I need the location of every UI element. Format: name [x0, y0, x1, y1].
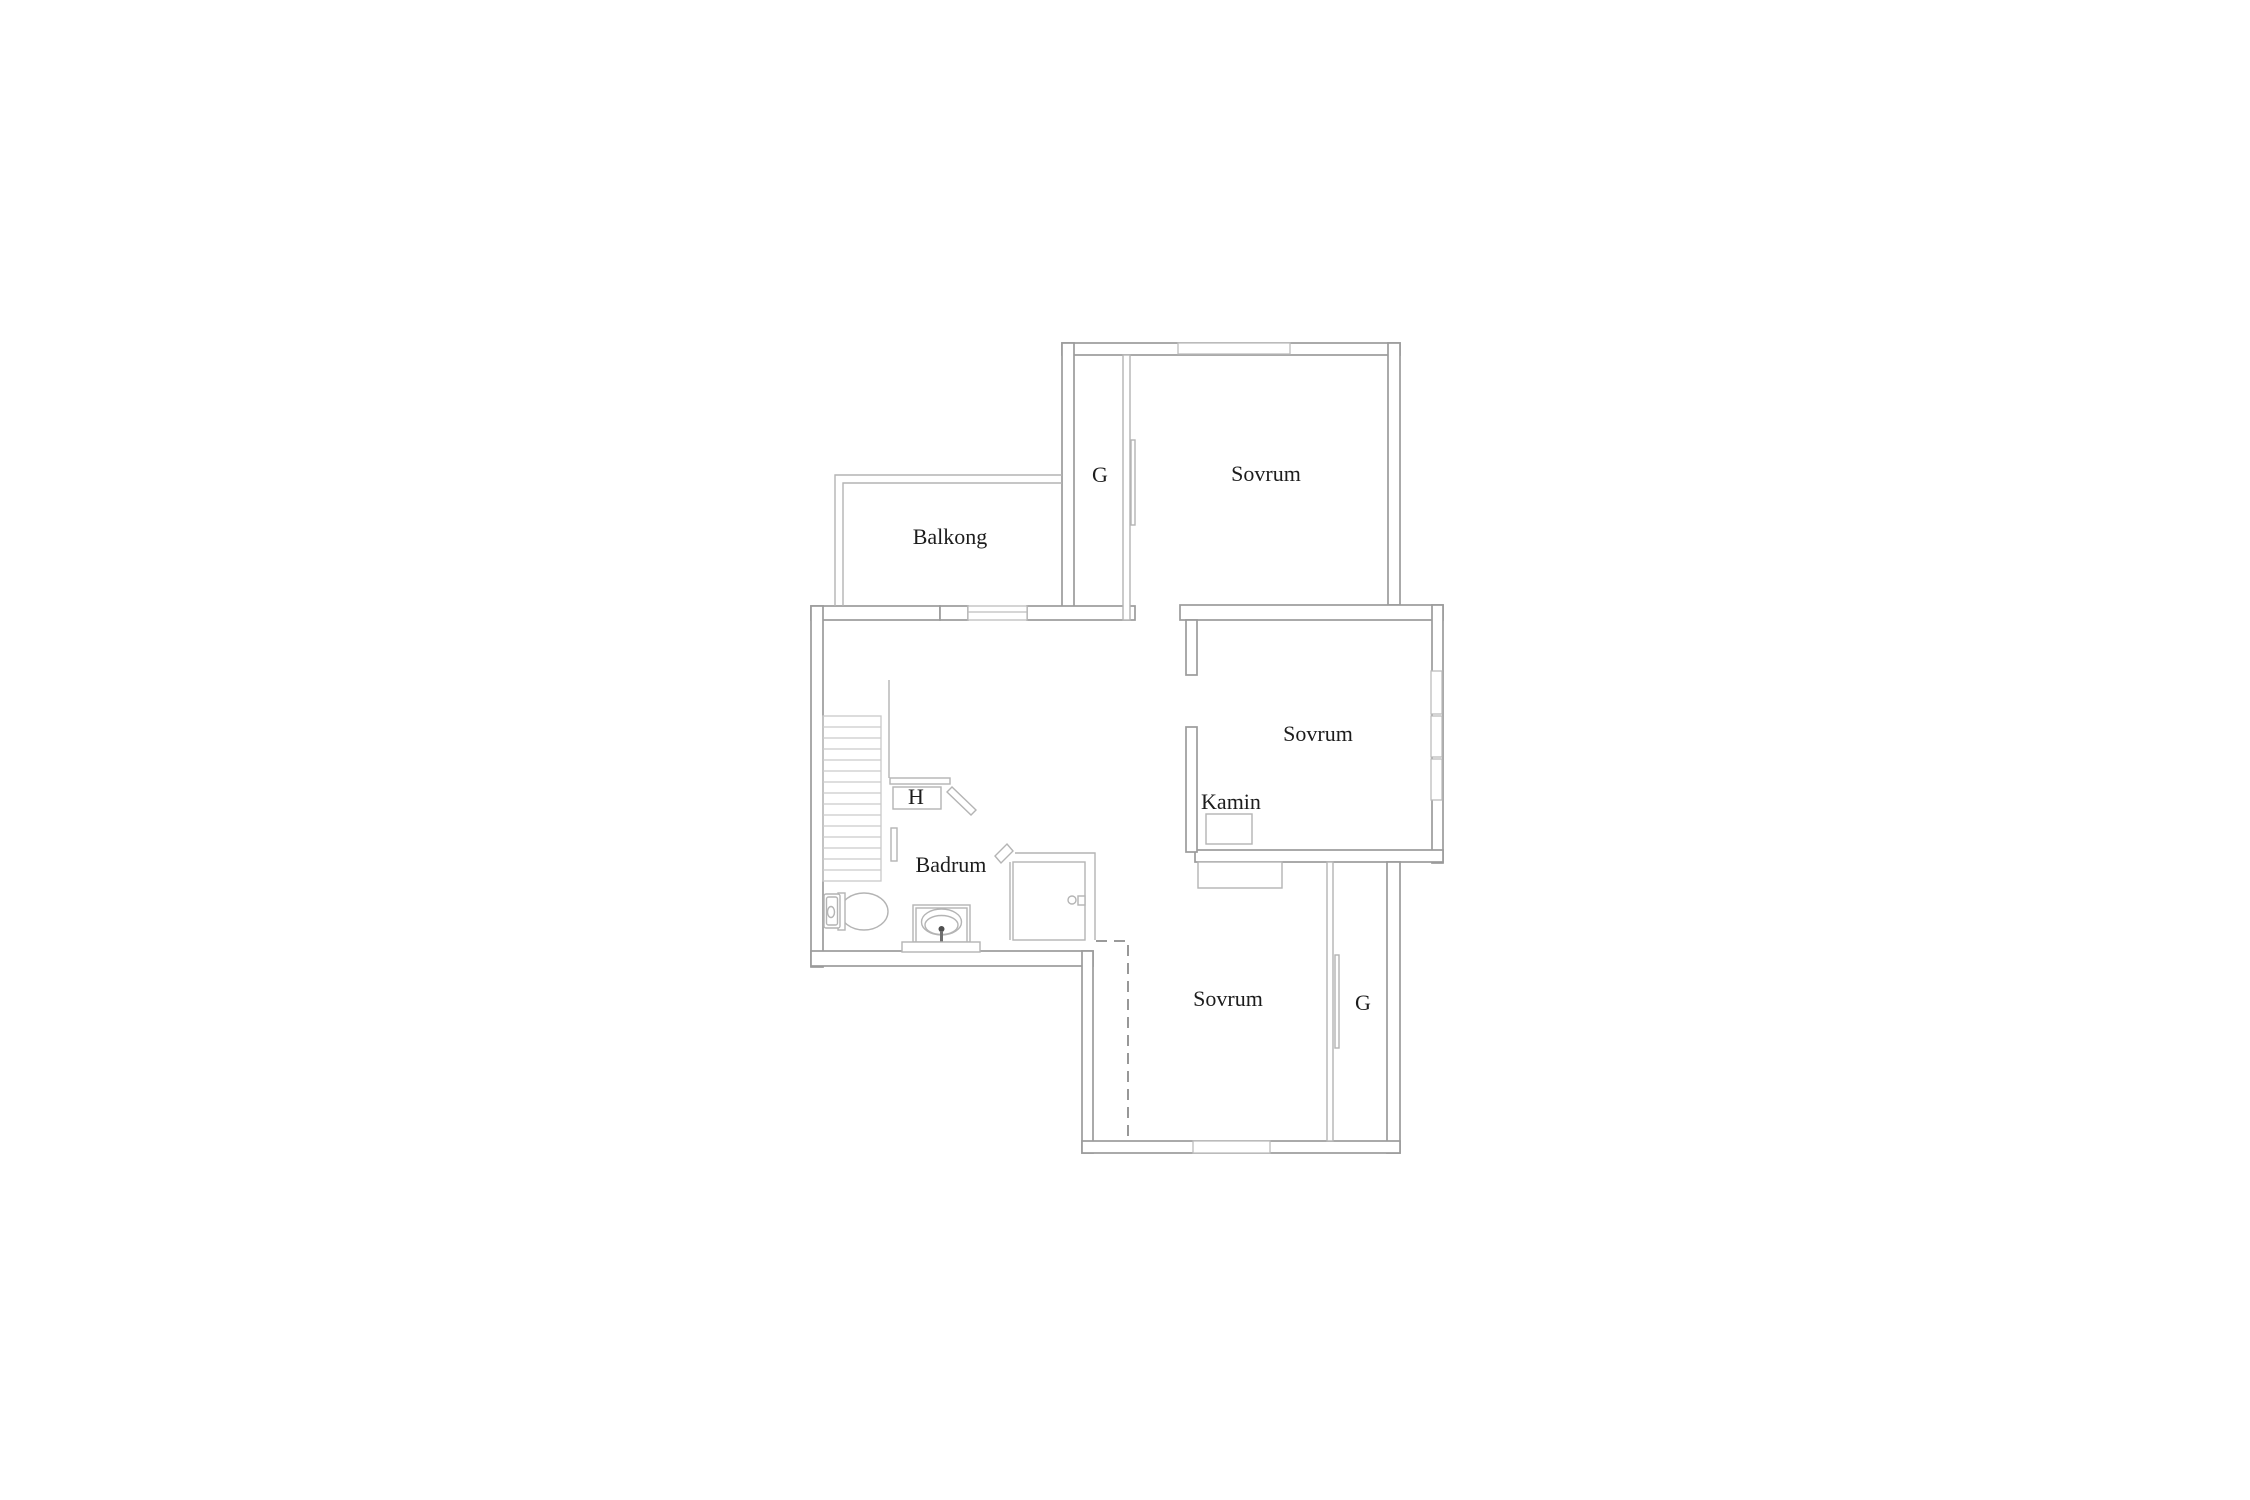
window-east-2	[1431, 716, 1442, 757]
window-balcony	[968, 606, 1027, 620]
floor-plan-page: Balkong G Sovrum Sovrum Kamin Badrum H S…	[0, 0, 2250, 1500]
closet-g-top-wall	[1123, 355, 1130, 620]
toilet-bowl	[840, 893, 888, 930]
bottom-block-west-wall	[1082, 951, 1093, 1153]
window-east-1	[1431, 671, 1442, 714]
balcony-door-jamb	[940, 606, 968, 620]
stair-treads	[823, 727, 881, 870]
sliding-door-closet-bottom	[1335, 955, 1339, 1048]
badrum-south-wall	[811, 951, 1093, 966]
wardrobe-niche	[1198, 862, 1282, 888]
room-label-closet-g-top: G	[1092, 462, 1108, 487]
shower-door-handle-plate	[1078, 896, 1085, 905]
sovrum-mid-north-wall	[1180, 605, 1443, 620]
room-label-closet-h: H	[908, 784, 924, 809]
shower-door-handle-knob	[1068, 896, 1076, 904]
window-top	[1178, 343, 1290, 354]
window-east-3	[1431, 759, 1442, 800]
window-south	[1193, 1141, 1270, 1153]
top-block-west-wall	[1062, 343, 1074, 607]
closet-h	[890, 778, 976, 815]
toilet-flush-button	[828, 907, 835, 918]
windows	[968, 343, 1442, 1153]
shower	[995, 844, 1095, 940]
room-label-sovrum-mid: Sovrum	[1283, 721, 1353, 746]
room-label-closet-g-bottom: G	[1355, 990, 1371, 1015]
sovrum-mid-south-wall	[1195, 850, 1443, 862]
room-label-sovrum-top: Sovrum	[1231, 461, 1301, 486]
shower-corner-diagonal	[995, 844, 1013, 863]
hall-north-wall-mid	[1027, 606, 1135, 620]
walls	[811, 343, 1443, 1153]
top-block-east-wall	[1388, 343, 1400, 605]
room-label-badrum: Badrum	[916, 852, 987, 877]
hall-north-wall-west	[811, 606, 940, 620]
room-label-sovrum-bottom: Sovrum	[1193, 986, 1263, 1011]
sovrum-mid-west-wall-upper	[1186, 620, 1197, 675]
middle-block-west-wall	[811, 606, 823, 967]
ceiling-break-dashed-line	[1096, 941, 1128, 1137]
sliding-door-closet-top	[1131, 440, 1135, 525]
sink-tap-stem	[940, 931, 943, 942]
staircase-box	[823, 716, 881, 881]
fireplace-kamin-box	[1206, 814, 1252, 844]
room-label-kamin: Kamin	[1201, 789, 1261, 814]
sink	[902, 905, 980, 952]
stair-handrail	[891, 828, 897, 861]
sovrum-mid-west-wall-lower	[1186, 727, 1197, 852]
staircase	[823, 680, 897, 881]
door-leaf-badrum	[947, 787, 976, 815]
floor-plan-drawing: Balkong G Sovrum Sovrum Kamin Badrum H S…	[0, 0, 2250, 1500]
bottom-block-east-wall	[1387, 862, 1400, 1153]
vanity-counter	[902, 942, 980, 952]
room-label-balkong: Balkong	[913, 524, 988, 549]
closet-g-bottom-wall	[1327, 862, 1333, 1141]
toilet	[824, 893, 888, 930]
room-labels: Balkong G Sovrum Sovrum Kamin Badrum H S…	[908, 461, 1371, 1015]
